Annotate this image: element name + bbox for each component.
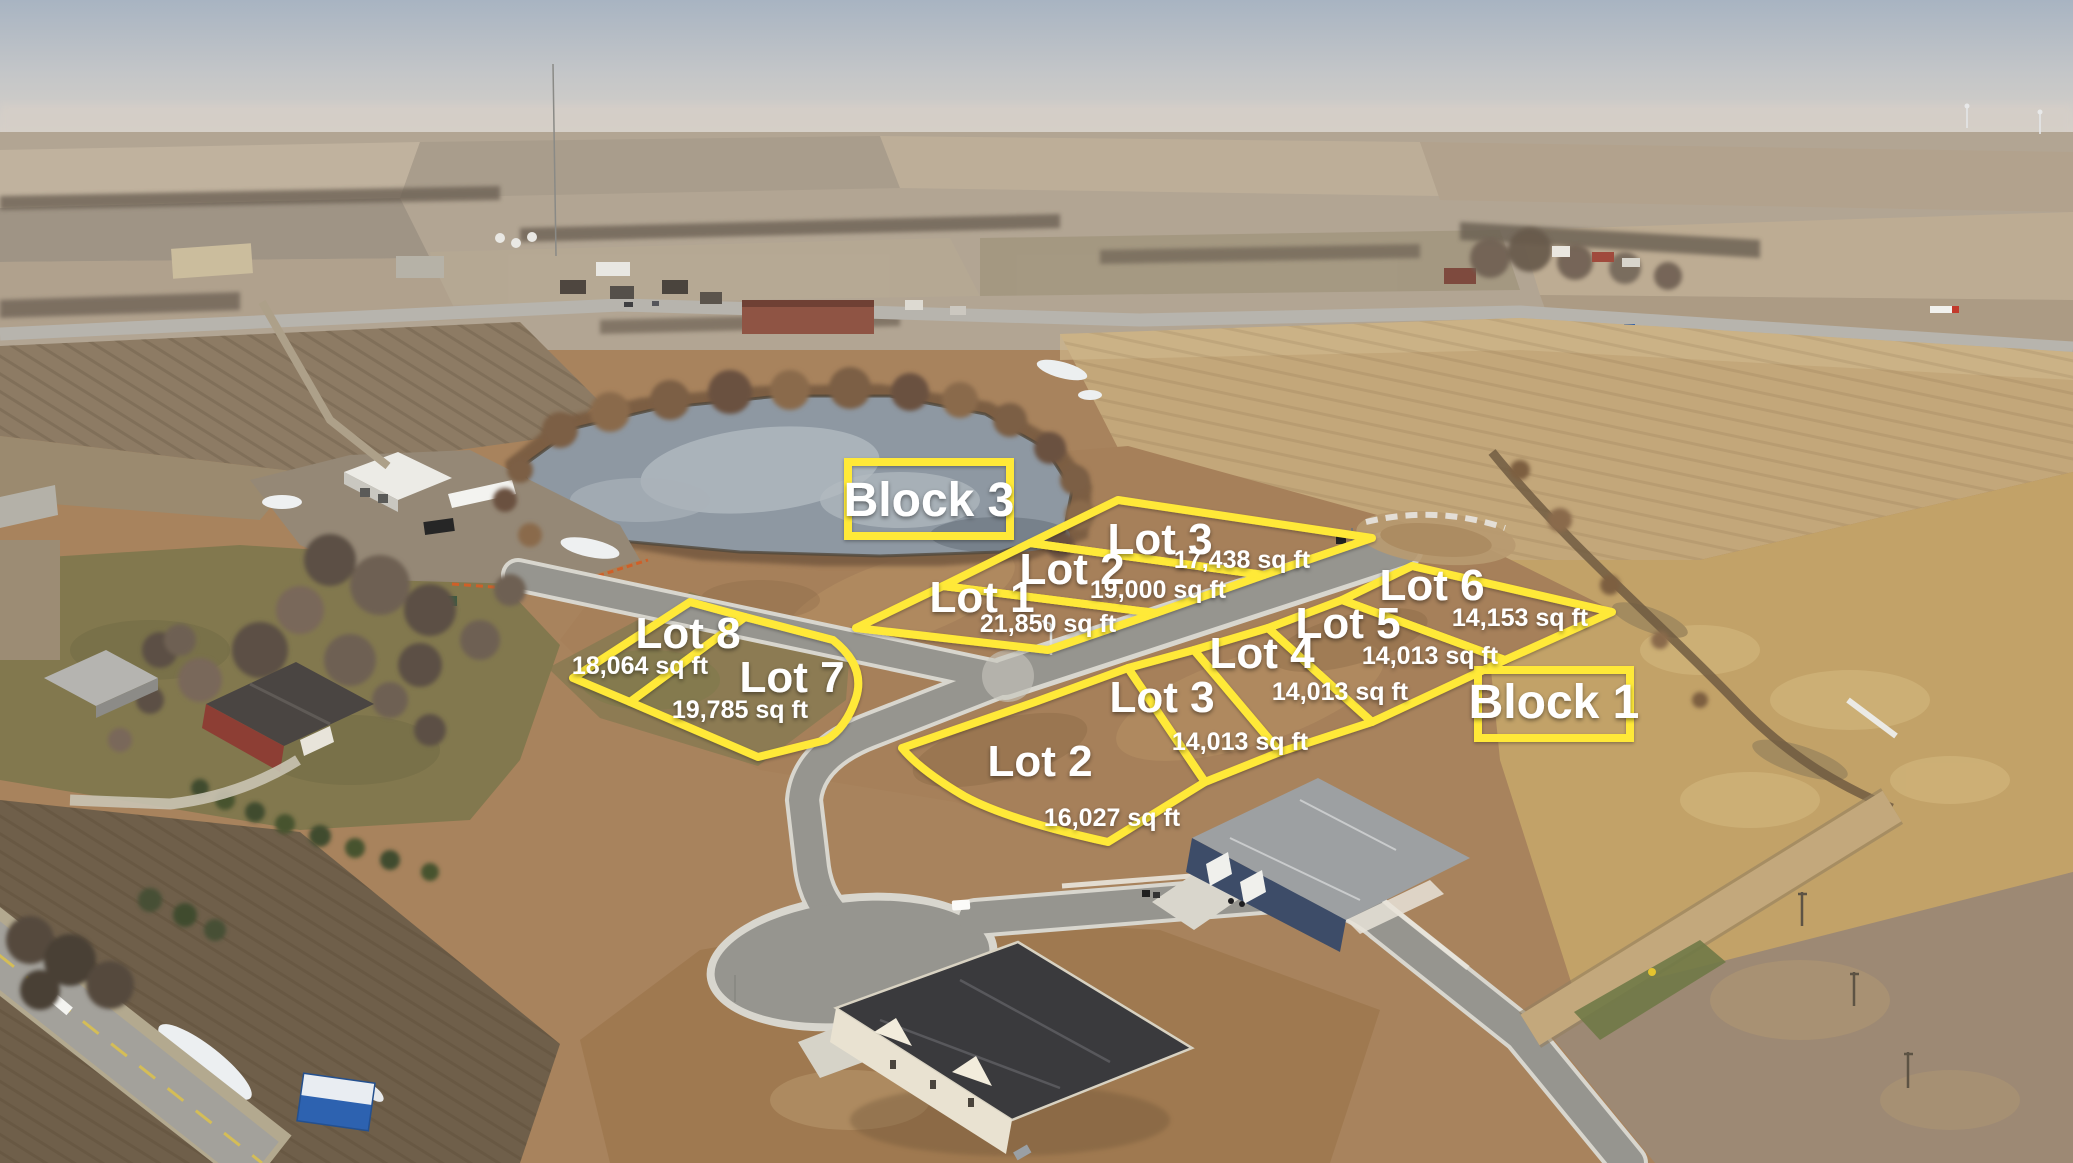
- blue-container: [297, 1073, 375, 1131]
- south-lot-6-area: 14,153 sq ft: [1452, 604, 1589, 632]
- white-car: [952, 899, 971, 910]
- north-lot-2-area: 19,000 sq ft: [1090, 576, 1227, 604]
- hydrant-marker: [1648, 968, 1656, 976]
- block-1-label: Block 1: [1469, 676, 1640, 729]
- block-3-label: Block 3: [844, 474, 1015, 527]
- red-truck-cab: [1952, 306, 1959, 313]
- south-lot-6-name: Lot 6: [1379, 561, 1484, 610]
- aerial-photo-canvas: Block 3 Block 1 Lot 1 21,850 sq ft Lot 2…: [0, 0, 2073, 1163]
- trash-bin: [1142, 890, 1150, 897]
- gas-station-canopy: [596, 262, 630, 276]
- west-lot-7-name: Lot 7: [739, 653, 844, 702]
- person-dot: [1239, 901, 1245, 907]
- aerial-lot-map: Block 3 Block 1 Lot 1 21,850 sq ft Lot 2…: [0, 0, 2073, 1163]
- intersection-apron: [982, 650, 1034, 702]
- red-roof-barn: [1592, 252, 1614, 262]
- person-dot: [1228, 898, 1234, 904]
- farmhouse: [1552, 246, 1570, 257]
- south-lot-3-area: 14,013 sq ft: [1172, 728, 1309, 756]
- west-lot-8-name: Lot 8: [635, 609, 740, 658]
- south-lot-2-name: Lot 2: [987, 737, 1092, 786]
- blue-twin-home: [1152, 778, 1470, 952]
- west-lot-8-area: 18,064 sq ft: [572, 652, 709, 680]
- white-semi-trailer: [1930, 306, 1952, 313]
- south-lot-4-area: 14,013 sq ft: [1272, 678, 1409, 706]
- west-lot-7-area: 19,785 sq ft: [672, 696, 809, 724]
- north-lot-1-area: 21,850 sq ft: [980, 610, 1117, 638]
- north-lot-3-area: 17,438 sq ft: [1174, 546, 1311, 574]
- south-lot-2-area: 16,027 sq ft: [1044, 804, 1181, 832]
- south-lot-3-name: Lot 3: [1109, 673, 1214, 722]
- south-lot-5-area: 14,013 sq ft: [1362, 642, 1499, 670]
